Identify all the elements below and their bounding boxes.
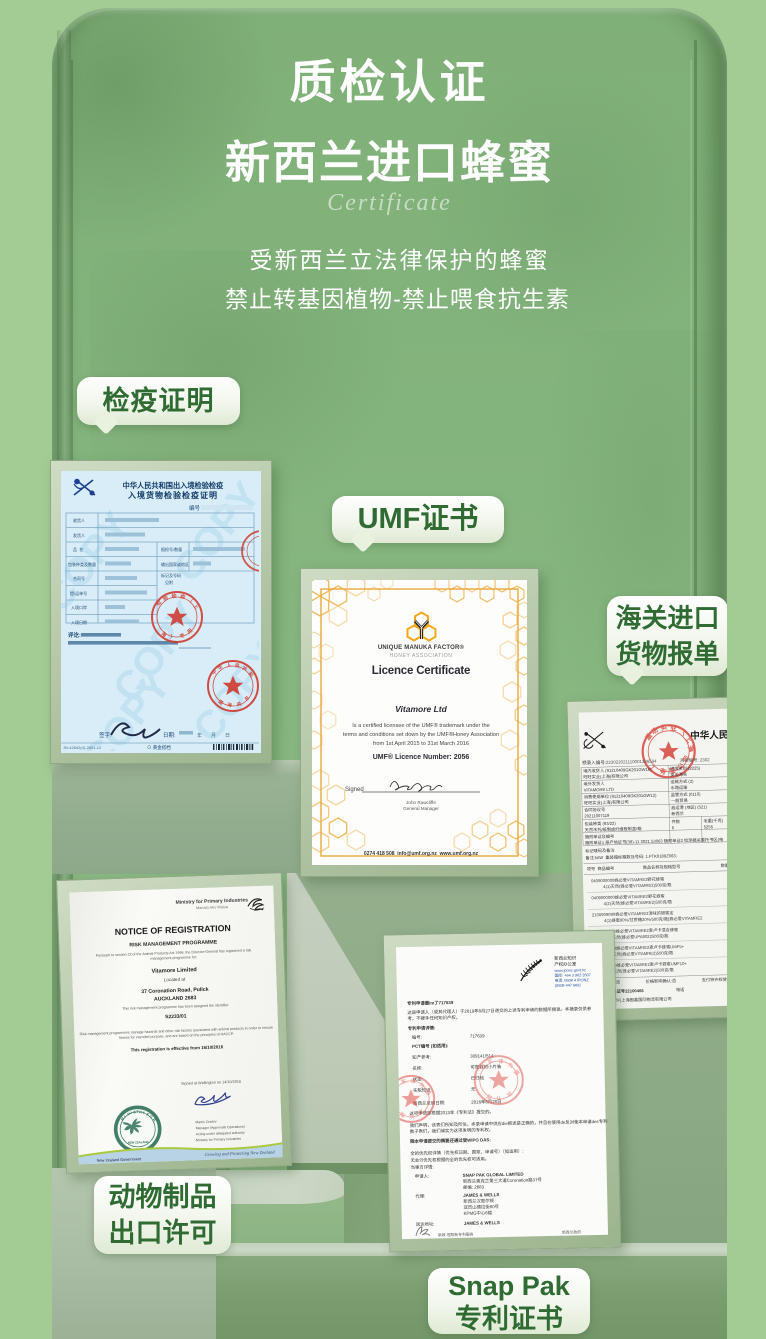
svg-text:⊙ 黄金搭档: ⊙ 黄金搭档 (147, 744, 171, 751)
svg-text:一般贸易: 一般贸易 (671, 797, 688, 804)
svg-text:Signed: Signed (345, 787, 364, 793)
svg-text:随本申请提交的摘要还通过受WIPO DAS:: 随本申请提交的摘要还通过受WIPO DAS: (410, 1136, 491, 1145)
svg-text:Located at: Located at (164, 977, 186, 983)
svg-text:实: 实 (659, 722, 668, 733)
svg-text:日: 日 (225, 733, 230, 739)
svg-text:terms and conditions set down: terms and conditions set down by the UMF… (343, 731, 499, 738)
svg-text:标记唛码及备注: 标记唛码及备注 (585, 847, 615, 855)
svg-text:国际: +64 3 962 2607: 国际: +64 3 962 2607 (555, 972, 591, 978)
svg-text:新西兰政府: 新西兰政府 (562, 1229, 581, 1234)
svg-text:JAMES & WELLS: JAMES & WELLS (464, 1220, 500, 1226)
svg-text:商品名称及规格型号: 商品名称及规格型号 (643, 863, 681, 871)
svg-text:KPMG中心6楼: KPMG中心6楼 (463, 1209, 492, 1217)
svg-text:合同号: 合同号 (73, 575, 85, 581)
svg-text:中华人民: 中华人民 (690, 729, 728, 742)
svg-text:Is a certified licensee of the: Is a certified licensee of the UMF® trad… (352, 722, 490, 729)
svg-text:收货人: 收货人 (73, 517, 85, 523)
svg-text:专利申请详情:: 专利申请详情: (408, 1024, 436, 1032)
svg-text:John Rawcliffe: John Rawcliffe (406, 800, 436, 805)
svg-text:发货人: 发货人 (73, 532, 85, 538)
svg-text:评讫:: 评讫: (68, 631, 81, 639)
svg-text:VITAMORE LTD: VITAMORE LTD (584, 787, 614, 793)
svg-text:717639: 717639 (470, 1033, 485, 1038)
svg-text:送达地址:: 送达地址: (416, 1220, 435, 1227)
svg-text:件数: 件数 (671, 818, 680, 825)
svg-text:备注:N/W 集装箱标箱数及号码: 1.FTK0189Z0: 备注:N/W 集装箱标箱数及号码: 1.FTK0189Z063; (585, 852, 677, 861)
svg-text:可密封的小片装: 可密封的小片装 (470, 1063, 501, 1071)
svg-text:包装种类及数量: 包装种类及数量 (68, 561, 96, 567)
svg-text:见附: 见附 (165, 579, 173, 585)
svg-text:Vitamore Ltd: Vitamore Ltd (395, 704, 447, 714)
svg-text:启运港 (地区) (521): 启运港 (地区) (521) (671, 803, 708, 811)
svg-text:无会의优先权根据的全的优先权可适用。: 无会의优先权根据的全的优先权可适用。 (410, 1155, 489, 1164)
svg-text:NEW ZEALAND: NEW ZEALAND (128, 1140, 149, 1145)
svg-text:年: 年 (197, 732, 202, 739)
svg-text:from 1st April 2015 to 31st Ma: from 1st April 2015 to 31st March 2016 (373, 741, 469, 747)
svg-text:全的优先权详情（优先权日期、国家、申请号）（如适用）:: 全的优先权详情（优先权日期、国家、申请号）（如适用）: (410, 1148, 523, 1157)
svg-text:项号 商品编号: 项号 商品编号 (587, 865, 615, 873)
svg-text:UNIQUE MANUKA FACTOR®: UNIQUE MANUKA FACTOR® (378, 644, 465, 651)
svg-text:名称:: 名称: (412, 1065, 422, 1072)
svg-text:考，不援手任何知识产权。: 考，不援手任何知识产权。 (407, 1014, 460, 1022)
svg-text:电话: 0508 4 IPONZ: 电话: 0508 4 IPONZ (555, 977, 590, 983)
svg-text:0274 418 508 info@umf.org.nz: 0274 418 508 info@umf.org.nz www.umf.org… (364, 851, 479, 857)
svg-text:当事方详情:: 当事方详情: (411, 1163, 434, 1170)
svg-text:天然木托/纸制成纤维板制盒/箱: 天然木托/纸制成纤维板制盒/箱 (585, 825, 642, 833)
svg-text:专利申请撤im了717639: 专利申请撤im了717639 (407, 999, 454, 1007)
svg-text:20211007119: 20211007119 (584, 813, 610, 819)
svg-text:报检号/数量: 报检号/数量 (161, 546, 182, 552)
svg-text:General Manager: General Manager (403, 806, 439, 811)
svg-text:编号:: 编号: (412, 1034, 422, 1041)
svg-text:疫: 疫 (180, 593, 186, 601)
svg-text:业: 业 (670, 723, 677, 732)
svg-text:JAMES & WELLS: JAMES & WELLS (463, 1192, 499, 1198)
svg-text:Licence Certificate: Licence Certificate (372, 665, 470, 677)
svg-text:我们声明，该表们所知及所信，本录申请中供应die报述是正确的: 我们声明，该表们所知及所信，本录申请中供应die报述是正确的，并且在使用de反对… (410, 1118, 608, 1129)
svg-text:毛重(千克): 毛重(千克) (703, 817, 723, 825)
svg-text:海关编号: 2302: 海关编号: 2302 (680, 756, 711, 764)
svg-text:申请人:: 申请人: (415, 1173, 430, 1180)
svg-text:输出国家或地区: 输出国家或地区 (161, 561, 189, 567)
svg-text:www.iponz.govt.nz: www.iponz.govt.nz (554, 968, 586, 973)
svg-text:签字:: 签字: (99, 731, 112, 739)
svg-text:UMF® Licence Number: 2056: UMF® Licence Number: 2056 (373, 753, 470, 761)
svg-text:223022021110001236594: 223022021110001236594 (606, 759, 657, 765)
svg-text:入境货物检验检疫证明: 入境货物检验检疫证明 (127, 490, 218, 500)
svg-text:新政·冠翔新专利服务: 新政·冠翔新专利服务 (438, 1232, 474, 1238)
svg-text:水路运输: 水路运输 (671, 784, 689, 791)
svg-text:代理:: 代理: (415, 1193, 425, 1200)
svg-text:入境日期: 入境日期 (71, 619, 87, 625)
svg-text:检: 检 (171, 592, 177, 600)
svg-text:预录入编号:: 预录入编号: (582, 759, 606, 767)
svg-text:PCT编号 (如适用):: PCT编号 (如适用): (412, 1042, 449, 1050)
svg-text:5255: 5255 (704, 824, 714, 829)
svg-text:新西兰: 新西兰 (671, 810, 684, 817)
svg-text:邮编: 2683: 邮编: 2683 (463, 1183, 485, 1190)
svg-text:JN-42842(4)-2001-12: JN-42842(4)-2001-12 (63, 745, 102, 750)
svg-text:中华人民共和国出入境检验检疫: 中华人民共和国出入境检验检疫 (123, 481, 224, 490)
svg-text:编号: 编号 (189, 504, 201, 512)
svg-text:吴淞海关: 吴淞海关 (670, 771, 687, 778)
svg-text:品 名: 品 名 (73, 546, 83, 552)
svg-text:这是申请人（或其代理人）于2019年8月27日递交的上述专利: 这是申请人（或其代理人）于2019年8月27日递交的上述专利申请的数据所摘录。本… (407, 1005, 592, 1016)
svg-text:知产参考:: 知产参考: (412, 1053, 431, 1060)
svg-text:月: 月 (211, 733, 216, 739)
svg-text:提/运单号: 提/运单号 (70, 590, 87, 596)
svg-text:电话: 电话 (676, 986, 685, 993)
svg-text:6: 6 (672, 825, 675, 830)
svg-text:价格影响确认:否: 价格影响确认:否 (646, 977, 677, 985)
svg-text:产权办公室: 产权办公室 (554, 960, 577, 967)
svg-text:HONEY ASSOCIATION: HONEY ASSOCIATION (390, 653, 453, 659)
svg-text:支付特许权使: 支付特许权使 (702, 976, 728, 984)
svg-text:入境口岸: 入境口岸 (71, 604, 87, 610)
svg-text:(0508 447 669): (0508 447 669) (555, 983, 582, 988)
svg-text:日期:: 日期: (163, 732, 176, 739)
svg-text:标记及号码: 标记及号码 (161, 572, 181, 578)
svg-text:为: 为 (507, 1061, 514, 1069)
svg-text:Martin Zinchiv: Martin Zinchiv (195, 1120, 217, 1125)
svg-text:S2233/01: S2233/01 (165, 1014, 187, 1021)
svg-text:山: 山 (396, 1082, 400, 1091)
svg-text:已归档: 已归档 (471, 1074, 485, 1081)
